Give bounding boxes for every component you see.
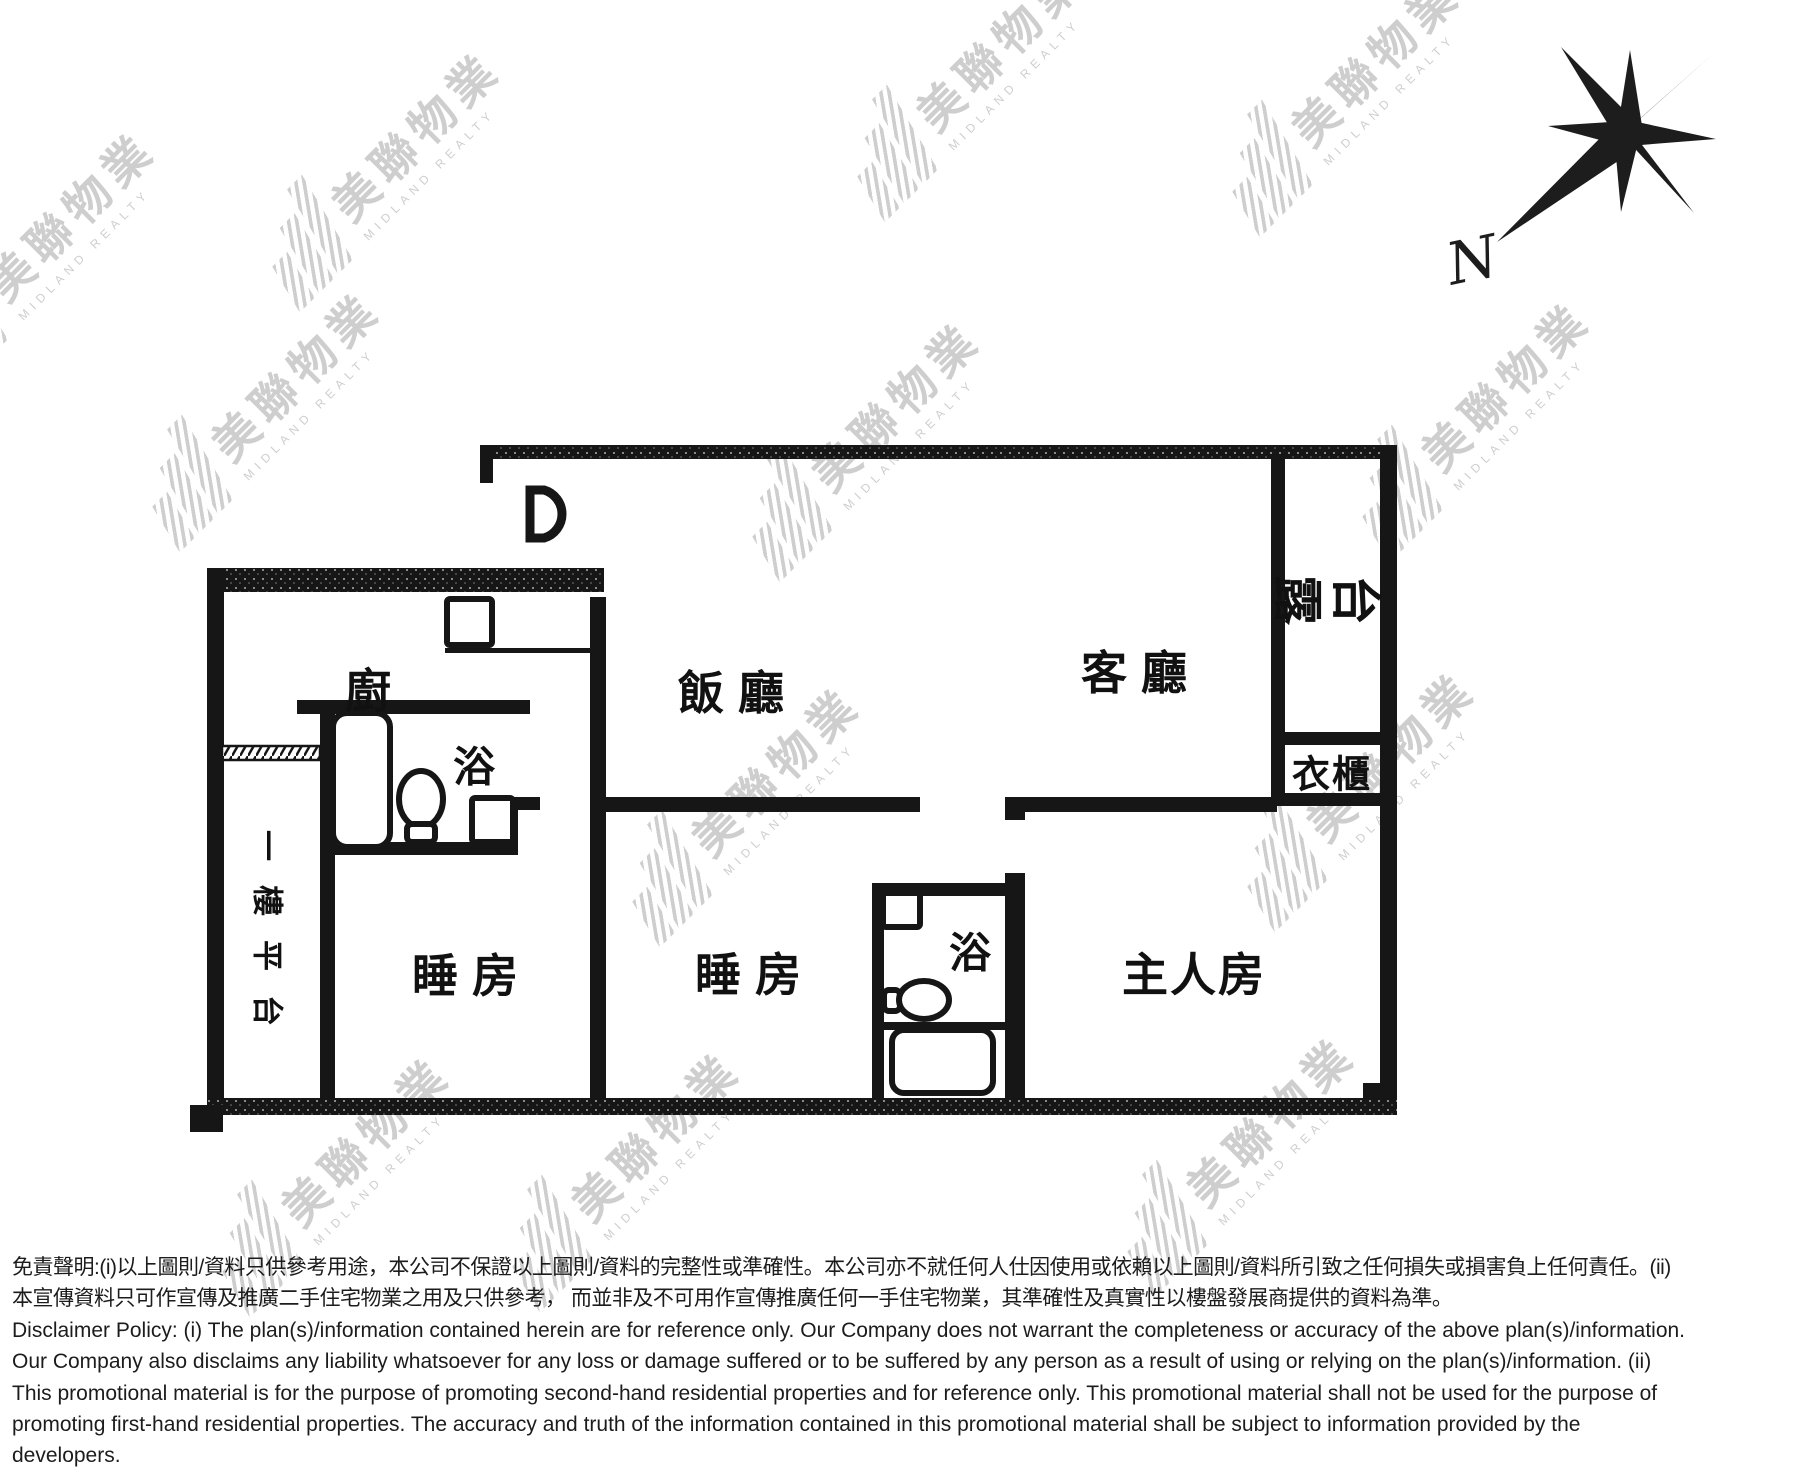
toilet-2 (899, 981, 949, 1019)
platform-fence-wall (222, 746, 320, 760)
disclaimer-line: Our Company also disclaims any liability… (12, 1346, 1802, 1377)
disclaimer-line: Disclaimer Policy: (i) The plan(s)/infor… (12, 1315, 1802, 1346)
bathtub-1 (333, 713, 390, 847)
room-label-balcony: 露 台 (1276, 564, 1384, 636)
compass-star-icon (1497, 47, 1716, 242)
disclaimer-line: 本宣傳資料只可作宣傳及推廣二手住宅物業之用及只供參考， 而並非及不可用作宣傳推廣… (12, 1283, 1802, 1314)
kitchen-sink (447, 599, 492, 645)
room-label-bath-1: 浴 (453, 734, 495, 795)
disclaimer-line: promoting first-hand residential propert… (12, 1409, 1802, 1440)
room-label-bedroom-1: 睡房 (412, 940, 532, 1006)
sink-2 (883, 893, 920, 927)
toilet-1 (399, 771, 443, 827)
bathtub-2 (892, 1030, 993, 1093)
room-label-living: 客廳 (1081, 637, 1201, 703)
room-label-kitchen: 廚 (345, 655, 391, 721)
disclaimer-line: developers. (12, 1440, 1802, 1471)
room-label-wardrobe: 衣櫃 (1292, 744, 1372, 799)
floor-plan-page: 美聯物業MIDLAND REALTY 美聯物業MIDLAND REALTY 美聯… (0, 0, 1811, 1479)
room-label-bedroom-2: 睡房 (695, 939, 815, 1005)
entrance-door-symbol (530, 490, 562, 538)
room-label-bath-2: 浴 (949, 920, 991, 981)
room-label-dining: 飯廳 (678, 657, 798, 723)
disclaimer-line: 免責聲明:(i)以上圖則/資料只供參考用途，本公司不保證以上圖則/資料的完整性或… (12, 1252, 1802, 1283)
room-label-master-bedroom: 主人房 (1122, 939, 1266, 1005)
room-label-platform: 一 樓 平 台 (255, 823, 286, 1033)
disclaimer-block: 免責聲明:(i)以上圖則/資料只供參考用途，本公司不保證以上圖則/資料的完整性或… (12, 1252, 1802, 1472)
sink-1 (472, 798, 513, 842)
disclaimer-line: This promotional material is for the pur… (12, 1378, 1802, 1409)
toilet-1-base (407, 824, 435, 842)
